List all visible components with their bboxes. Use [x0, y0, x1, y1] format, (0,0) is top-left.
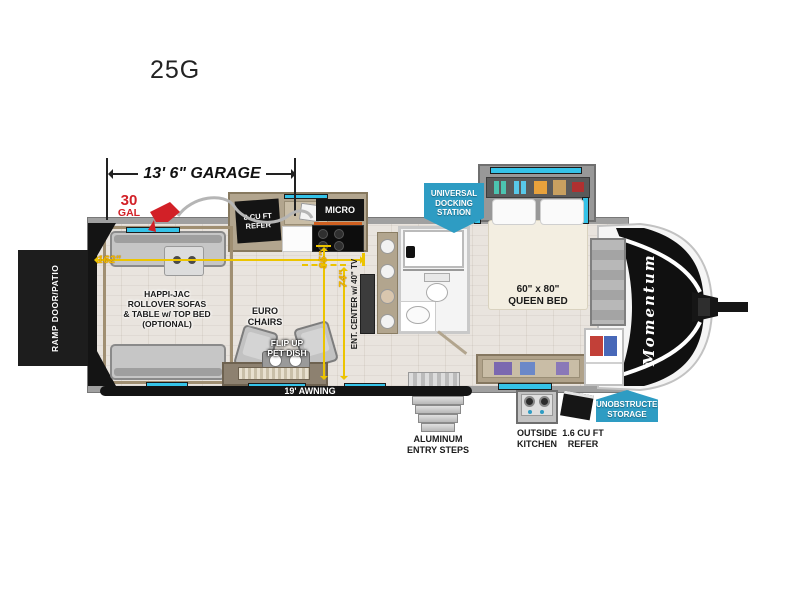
wardrobe-shelf-line	[586, 362, 622, 364]
depth-dimension-95: 95"	[317, 247, 331, 380]
fuel-unit: GAL	[112, 208, 146, 219]
shelf-bin-icon	[380, 239, 395, 254]
ramp-door-label: RAMP DOOR/PATIO	[50, 258, 66, 358]
outside-refer-unit	[560, 391, 594, 421]
shower-fixture-icon	[406, 246, 415, 258]
toilet-tank	[424, 273, 450, 282]
shelf-item	[494, 181, 499, 194]
ent-center-label: ENT. CENTER w/ 40" TV	[348, 248, 360, 360]
garage-dim-label: 13' 6" GARAGE	[138, 165, 265, 183]
tv-cabinet	[360, 274, 375, 334]
shelf-item	[553, 180, 566, 195]
shelf-item	[501, 181, 506, 194]
bedroom-slide-window	[490, 167, 582, 174]
pillow	[540, 199, 584, 225]
shelf-item	[514, 181, 519, 194]
entry-step	[418, 414, 458, 423]
knob-icon	[540, 410, 544, 414]
fuel-amount: 30	[112, 193, 146, 208]
burner-icon	[334, 229, 344, 239]
queen-bed-label: 60" x 80" QUEEN BED	[496, 284, 580, 308]
dresser-item	[556, 362, 569, 375]
floorplan-canvas: 25G 13' 6" GARAGE 30 GAL RAMP DOOR/PATIO…	[0, 0, 800, 600]
shelf-item	[534, 181, 547, 194]
entry-landing	[408, 372, 460, 387]
shelf-item	[521, 181, 526, 194]
shelf-item	[572, 182, 584, 192]
garage-opening-frame-side	[88, 223, 97, 386]
dresser-item	[520, 362, 535, 375]
shelf-bin-icon	[380, 314, 395, 329]
length-162-label: 162"	[94, 254, 124, 266]
bathroom-sink	[406, 306, 430, 324]
micro-label: MICRO	[325, 205, 355, 216]
microwave: MICRO	[316, 199, 364, 221]
awning-label: 19' AWNING	[240, 386, 380, 396]
pet-dish-label: FLIP UP PET DISH	[254, 339, 320, 359]
burner-icon	[539, 396, 550, 407]
page-title: 25G	[150, 56, 200, 85]
arrow-down-icon	[340, 376, 348, 380]
hanging-clothes-blue	[604, 336, 617, 356]
dim-dash-line	[302, 264, 346, 266]
rollover-sofa-bottom	[110, 344, 226, 380]
entry-step	[421, 423, 455, 432]
dresser-item	[494, 362, 512, 375]
garage-sofas-label: HAPPI-JAC ROLLOVER SOFAS & TABLE w/ TOP …	[108, 289, 226, 329]
entry-steps-label: ALUMINUM ENTRY STEPS	[392, 434, 484, 455]
hanging-clothes-red	[590, 336, 603, 356]
bathroom-wall	[403, 269, 464, 271]
entry-step	[412, 396, 464, 405]
dim-end-cap	[362, 253, 365, 266]
euro-chairs-label: EURO CHAIRS	[232, 306, 298, 327]
front-cabinet	[590, 238, 626, 326]
arrow-right-icon	[291, 169, 296, 179]
fuel-hose-icon	[140, 190, 320, 242]
knob-icon	[528, 410, 532, 414]
burner-icon	[524, 396, 535, 407]
toilet	[426, 283, 448, 302]
pillow	[492, 199, 536, 225]
arrow-down-icon	[320, 376, 328, 380]
tambour-door	[238, 367, 310, 380]
fuel-capacity-label: 30 GAL	[112, 193, 146, 219]
outside-refer-label: 1.6 CU FT REFER	[552, 428, 614, 449]
entry-step	[415, 405, 461, 414]
brand-logo: Momentum	[640, 248, 662, 372]
shelf-bin-icon	[380, 264, 395, 279]
garage-dimension: 13' 6" GARAGE	[108, 166, 296, 182]
shelf-bin-icon	[380, 289, 395, 304]
window	[498, 383, 552, 390]
